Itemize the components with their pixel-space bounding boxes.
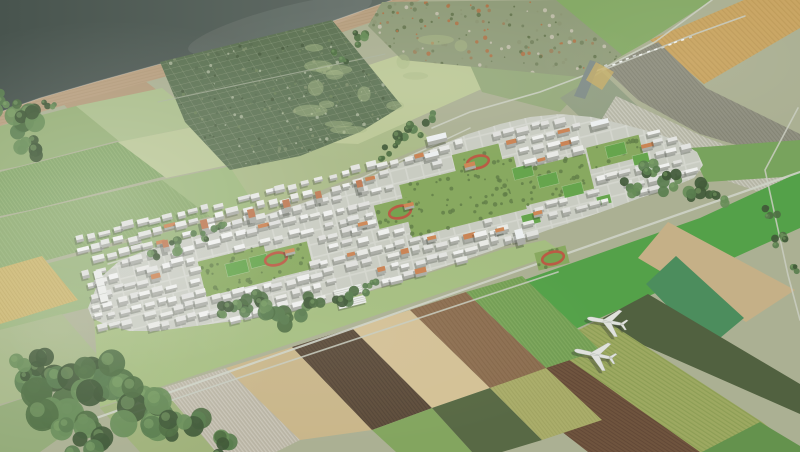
aerial-masterplan-image (0, 0, 800, 452)
atmospheric-haze (0, 0, 800, 452)
aerial-render-canvas (0, 0, 800, 452)
